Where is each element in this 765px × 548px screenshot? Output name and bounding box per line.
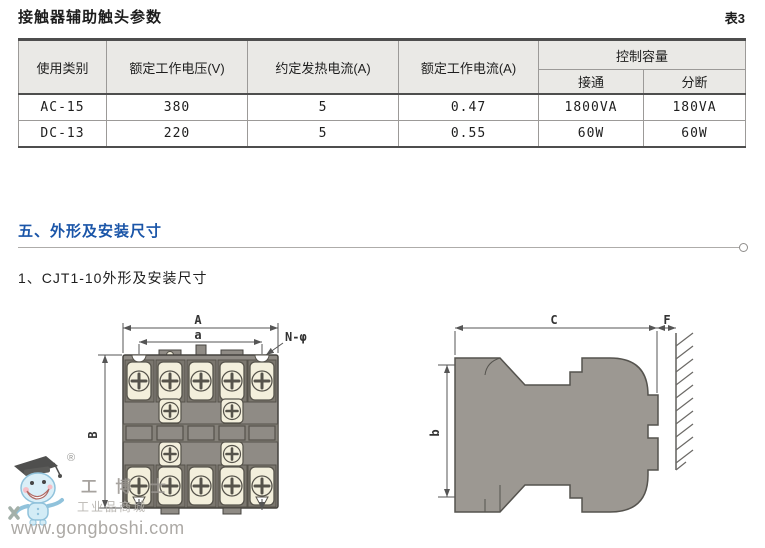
dim-label-F: F — [663, 313, 670, 327]
dim-label-b: b — [428, 429, 442, 436]
terminal-screws-top-row — [127, 362, 274, 400]
header-cell-make: 接通 — [539, 70, 644, 95]
dim-label-B: B — [86, 431, 100, 438]
cell-working-current: 0.47 — [399, 94, 539, 121]
header-cell-break: 分断 — [644, 70, 746, 95]
watermark-brand: 工 博 士 — [81, 473, 173, 497]
cell-thermal-current: 5 — [248, 94, 399, 121]
header-cell-voltage: 额定工作电压(V) — [107, 40, 248, 95]
dim-label-a: a — [194, 328, 201, 342]
hole-callout-label: N-φ — [285, 330, 307, 344]
cell-make: 60W — [539, 121, 644, 148]
datasheet-page: 接触器辅助触头参数 表3 使用类别 额定工作电压(V) 约定发热电流(A) 额定… — [0, 0, 765, 548]
dim-label-A: A — [194, 313, 202, 327]
cell-category: AC-15 — [19, 94, 107, 121]
subsection-heading: 1、CJT1-10外形及安装尺寸 — [18, 268, 207, 288]
header-cell-thermal-current: 约定发热电流(A) — [248, 40, 399, 95]
table-number: 表3 — [725, 8, 745, 27]
header-cell-category: 使用类别 — [19, 40, 107, 95]
header-cell-control-capacity: 控制容量 — [539, 40, 746, 70]
header-cell-working-current: 额定工作电流(A) — [399, 40, 539, 95]
cell-voltage: 220 — [107, 121, 248, 148]
registered-mark: ® — [67, 452, 75, 464]
title-row: 接触器辅助触头参数 表3 — [18, 6, 747, 28]
parameters-table: 使用类别 额定工作电压(V) 约定发热电流(A) 额定工作电流(A) 控制容量 … — [18, 38, 746, 148]
section-heading: 五、外形及安装尺寸 — [18, 220, 162, 241]
cell-category: DC-13 — [19, 121, 107, 148]
page-title: 接触器辅助触头参数 — [18, 9, 162, 26]
cell-voltage: 380 — [107, 94, 248, 121]
section-divider — [18, 247, 739, 248]
cell-break: 60W — [644, 121, 746, 148]
watermark-url: www.gongboshi.com — [11, 518, 185, 539]
cell-thermal-current: 5 — [248, 121, 399, 148]
cell-working-current: 0.55 — [399, 121, 539, 148]
cell-make: 1800VA — [539, 94, 644, 121]
mounting-wall — [676, 333, 693, 470]
watermark-tagline: 工业品商城 — [77, 498, 147, 515]
side-view-drawing: C F b — [420, 313, 710, 548]
contactor-side-body — [455, 358, 658, 512]
divider-end-circle — [739, 243, 748, 252]
dim-label-C: C — [550, 313, 557, 327]
cell-break: 180VA — [644, 94, 746, 121]
hole-callout-leader — [266, 343, 283, 355]
